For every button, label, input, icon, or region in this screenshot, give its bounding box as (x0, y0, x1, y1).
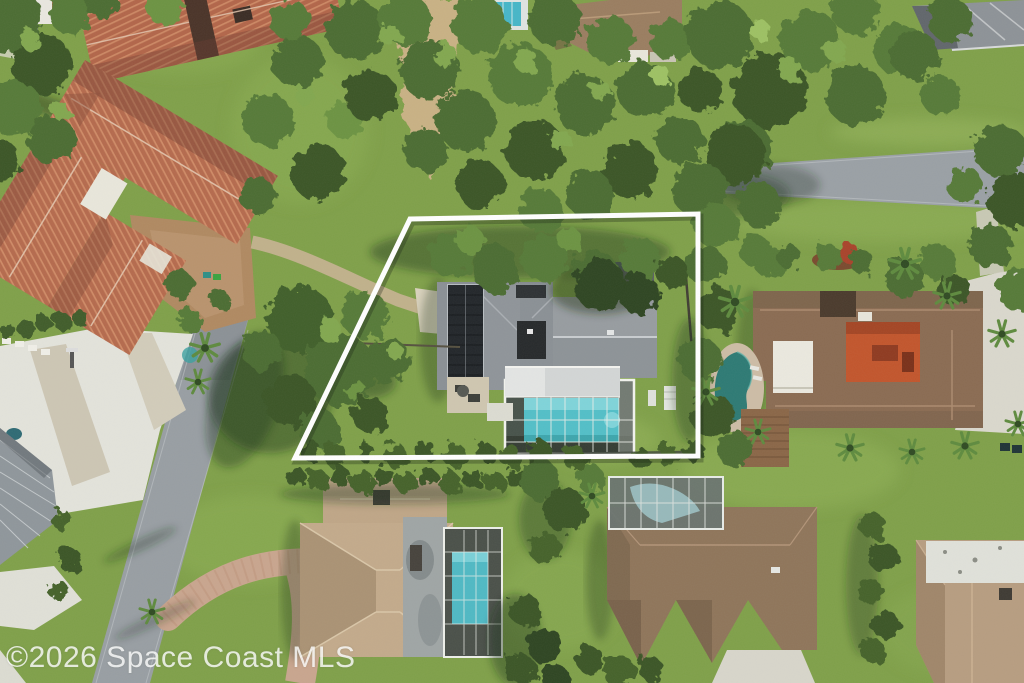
photo-grain-overlay (0, 0, 1024, 683)
mls-watermark: ©2026 Space Coast MLS (6, 641, 355, 675)
aerial-photo: ©2026 Space Coast MLS (0, 0, 1024, 683)
